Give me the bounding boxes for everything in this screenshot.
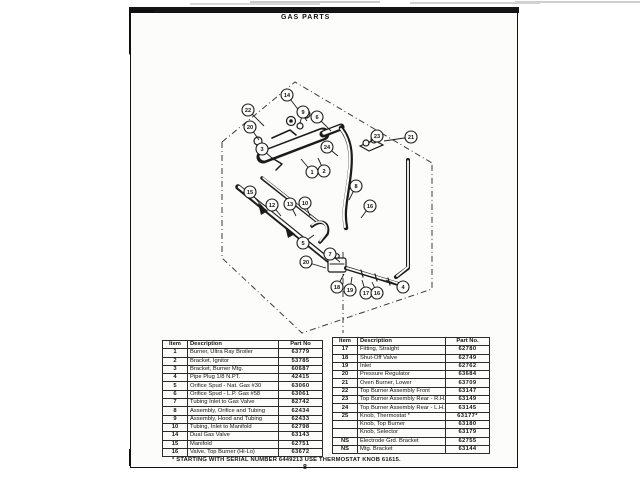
table-cell: Knob, Selector <box>358 429 446 437</box>
table-row: 6Orifice Spud - L.P. Gas #5863061 <box>163 390 323 398</box>
table-cell: 14 <box>163 432 188 440</box>
table-cell: 24 <box>333 404 358 412</box>
table-cell <box>333 429 358 437</box>
table-row: Knob, Top Burner63180 <box>333 420 490 428</box>
table-cell: 20 <box>333 371 358 379</box>
table-row: 22Top Burner Assembly Front63147 <box>333 387 490 395</box>
table-row: 15Manifold62751 <box>163 440 323 448</box>
table-cell: 63709 <box>446 379 490 387</box>
table-cell: Mtg. Bracket <box>358 445 446 453</box>
table-row: 9Assembly, Hood and Tubing62433 <box>163 415 323 423</box>
table-cell: 53785 <box>279 357 323 365</box>
table-row: Knob, Selector63179 <box>333 429 490 437</box>
table-cell: NS <box>333 445 358 453</box>
table-cell: 62798 <box>279 423 323 431</box>
table-cell: Electrode Grd. Bracket <box>358 437 446 445</box>
table-cell: 63149 <box>446 396 490 404</box>
table-cell: 63672 <box>279 448 323 456</box>
table-row: 23Top Burner Assembly Rear - R.H.63149 <box>333 396 490 404</box>
table-cell: 62751 <box>279 440 323 448</box>
table-row: 24Top Burner Assembly Rear - L.H.63145 <box>333 404 490 412</box>
table-row: 17Fitting, Straight62780 <box>333 346 490 354</box>
table-cell: 63179 <box>446 429 490 437</box>
table-cell: 63684 <box>446 371 490 379</box>
table-cell: Assembly, Orifice and Tubing <box>188 407 279 415</box>
table-row: 25Knob, Thermostat *63177* <box>333 412 490 420</box>
page-number: 8 <box>303 464 307 471</box>
footnote: * STARTING WITH SERIAL NUMBER 6449213 US… <box>172 457 512 463</box>
table-cell: 63145 <box>446 404 490 412</box>
table-cell: 16 <box>163 448 188 456</box>
table-row: 8Assembly, Orifice and Tubing62434 <box>163 407 323 415</box>
table-cell: 6 <box>163 390 188 398</box>
table-cell: 23 <box>333 396 358 404</box>
table-cell: Tubing Inlet to Gas Valve <box>188 399 279 407</box>
table-row: 14Dual Gas Valve63143 <box>163 432 323 440</box>
table-cell: 8 <box>163 407 188 415</box>
table-cell: 63779 <box>279 349 323 357</box>
table-header: Part No. <box>446 338 490 346</box>
table-cell: 5 <box>163 382 188 390</box>
table-header: Description <box>358 338 446 346</box>
table-header: Description <box>188 341 279 349</box>
table-row: 5Orifice Spud - Nat. Gas #3063060 <box>163 382 323 390</box>
table-cell: Fitting, Straight <box>358 346 446 354</box>
table-cell: 62780 <box>446 346 490 354</box>
table-row: 2Bracket, Ignitor53785 <box>163 357 323 365</box>
table-cell: Valve, Top Burner (Hi-Lo) <box>188 448 279 456</box>
table-cell: NS <box>333 437 358 445</box>
table-cell: 63144 <box>446 445 490 453</box>
table-cell: 3 <box>163 365 188 373</box>
table-row: 10Tubing, Inlet to Manifold62798 <box>163 423 323 431</box>
table-cell: 19 <box>333 362 358 370</box>
table-cell: 63180 <box>446 420 490 428</box>
table-cell: Shut-Off Valve <box>358 354 446 362</box>
table-header: Item <box>333 338 358 346</box>
table-row: 7Tubing Inlet to Gas Valve82742 <box>163 399 323 407</box>
table-cell: 15 <box>163 440 188 448</box>
table-cell: 63177* <box>446 412 490 420</box>
table-cell: Top Burner Assembly Rear - L.H. <box>358 404 446 412</box>
table-cell: Top Burner Assembly Front <box>358 387 446 395</box>
table-cell: 82742 <box>279 399 323 407</box>
table-row: 3Bracket, Burner Mtg.60687 <box>163 365 323 373</box>
table-cell: 25 <box>333 412 358 420</box>
table-cell: 7 <box>163 399 188 407</box>
table-header: Item <box>163 341 188 349</box>
table-cell: Top Burner Assembly Rear - R.H. <box>358 396 446 404</box>
table-cell: 60687 <box>279 365 323 373</box>
scanned-document-screen: GAS PARTS <box>0 0 640 480</box>
table-cell: Burner, Ultra Ray Broiler <box>188 349 279 357</box>
table-row: 20Pressure Regulator63684 <box>333 371 490 379</box>
table-row: 18Shut-Off Valve62749 <box>333 354 490 362</box>
table-cell: 62749 <box>446 354 490 362</box>
table-cell: Knob, Thermostat * <box>358 412 446 420</box>
table-row: 21Oven Burner, Lower63709 <box>333 379 490 387</box>
table-cell: Orifice Spud - Nat. Gas #30 <box>188 382 279 390</box>
table-cell <box>333 420 358 428</box>
table-cell: 62433 <box>279 415 323 423</box>
table-cell: 17 <box>333 346 358 354</box>
table-row: 19Inlet62762 <box>333 362 490 370</box>
table-cell: 63060 <box>279 382 323 390</box>
table-row: 4Pipe Plug 1/8 N.PT.42415 <box>163 374 323 382</box>
table-cell: 2 <box>163 357 188 365</box>
table-cell: Bracket, Ignitor <box>188 357 279 365</box>
parts-table-left: ItemDescriptionPart No1Burner, Ultra Ray… <box>162 340 323 457</box>
table-cell: Assembly, Hood and Tubing <box>188 415 279 423</box>
table-cell: Knob, Top Burner <box>358 420 446 428</box>
table-cell: 9 <box>163 415 188 423</box>
scan-noise <box>250 1 380 3</box>
page-title: GAS PARTS <box>281 14 330 21</box>
table-cell: Manifold <box>188 440 279 448</box>
table-cell: 42415 <box>279 374 323 382</box>
table-cell: 1 <box>163 349 188 357</box>
table-cell: Bracket, Burner Mtg. <box>188 365 279 373</box>
table-cell: 18 <box>333 354 358 362</box>
table-row: NSElectrode Grd. Bracket62755 <box>333 437 490 445</box>
table-cell: 22 <box>333 387 358 395</box>
table-cell: Inlet <box>358 362 446 370</box>
table-cell: Tubing, Inlet to Manifold <box>188 423 279 431</box>
table-cell: 62434 <box>279 407 323 415</box>
table-cell: 62762 <box>446 362 490 370</box>
table-cell: Oven Burner, Lower <box>358 379 446 387</box>
table-cell: 63147 <box>446 387 490 395</box>
table-row: 1Burner, Ultra Ray Broiler63779 <box>163 349 323 357</box>
table-cell: Orifice Spud - L.P. Gas #58 <box>188 390 279 398</box>
table-cell: 63143 <box>279 432 323 440</box>
table-cell: Pipe Plug 1/8 N.PT. <box>188 374 279 382</box>
table-cell: 62755 <box>446 437 490 445</box>
table-cell: Pressure Regulator <box>358 371 446 379</box>
table-row: 16Valve, Top Burner (Hi-Lo)63672 <box>163 448 323 456</box>
table-cell: 21 <box>333 379 358 387</box>
table-header: Part No <box>279 341 323 349</box>
table-cell: 4 <box>163 374 188 382</box>
table-cell: Dual Gas Valve <box>188 432 279 440</box>
table-cell: 10 <box>163 423 188 431</box>
table-row: NSMtg. Bracket63144 <box>333 445 490 453</box>
parts-table-right: ItemDescriptionPart No.17Fitting, Straig… <box>332 337 490 454</box>
table-cell: 63061 <box>279 390 323 398</box>
